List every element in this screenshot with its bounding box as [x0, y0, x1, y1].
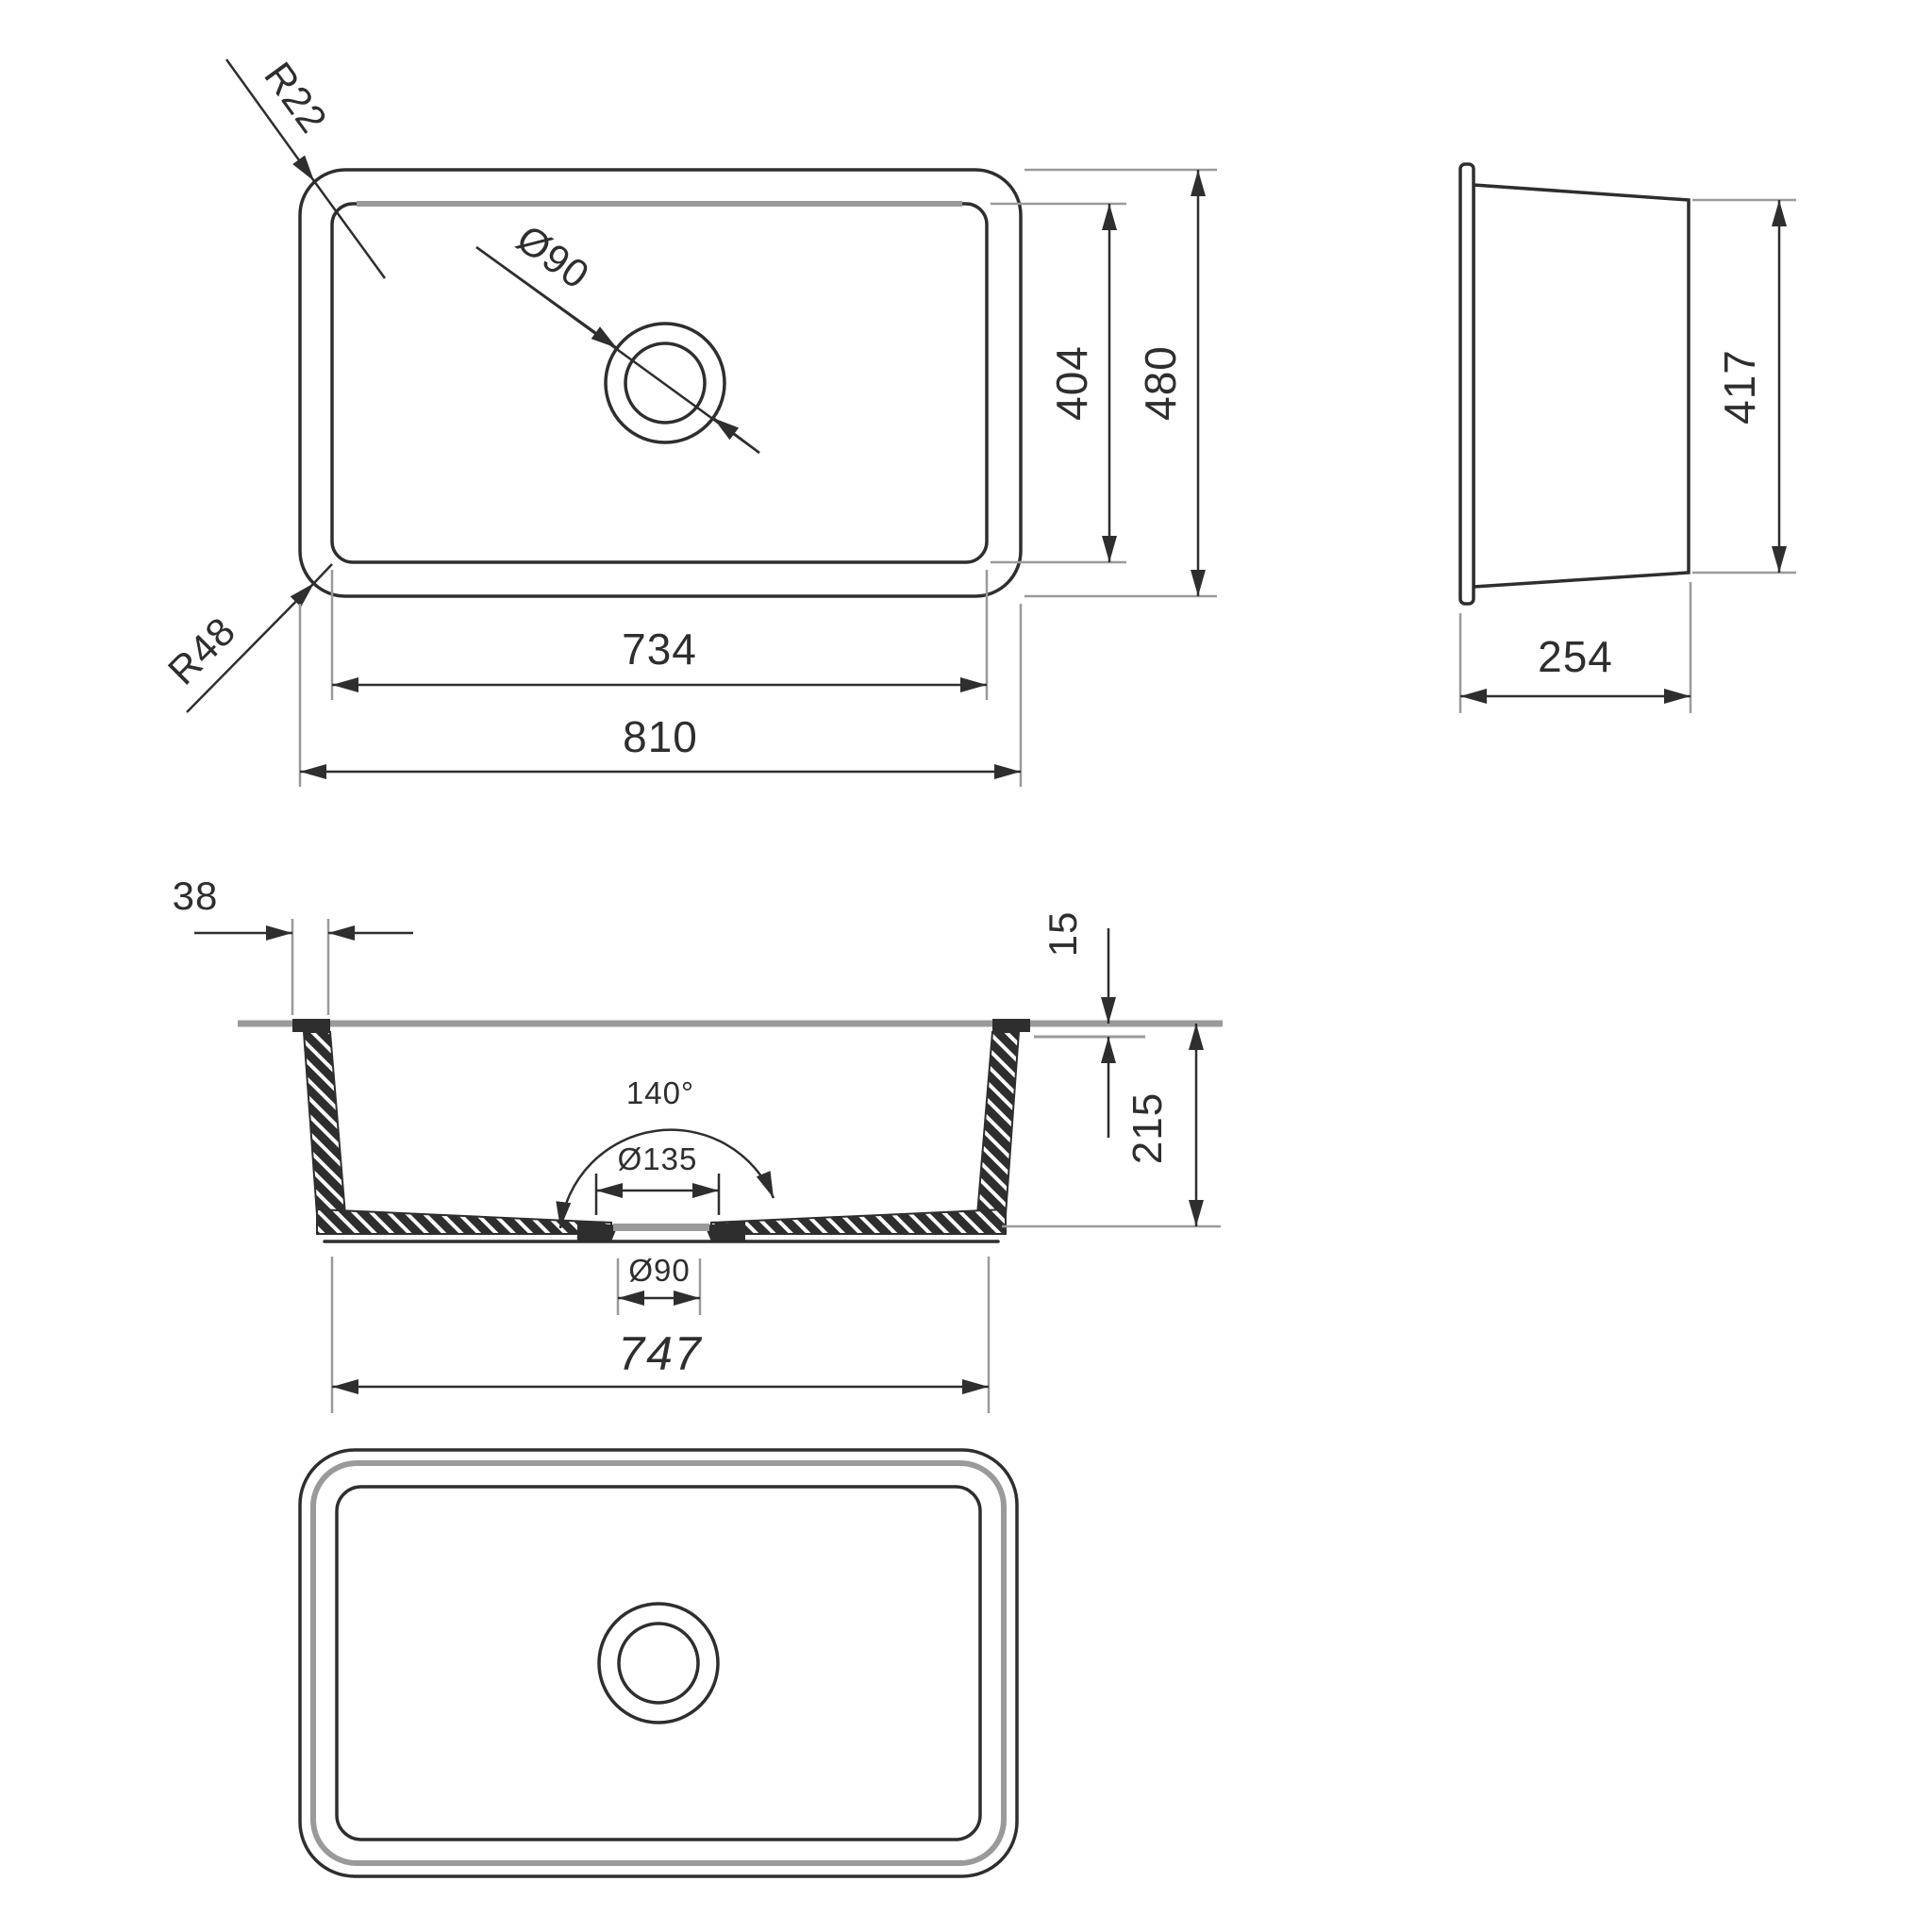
angle-140-label: 140° — [626, 1075, 694, 1110]
dim-404-label: 404 — [1047, 345, 1096, 421]
bottom-inner-outline — [337, 1487, 980, 1840]
dim-254-label: 254 — [1538, 632, 1613, 681]
rim-cap-right — [992, 1019, 1030, 1032]
bottom-outer-outline — [300, 1450, 1017, 1876]
bottom-drain-hole-circle — [619, 1624, 698, 1703]
dim-215-label: 215 — [1124, 1092, 1171, 1164]
sink-outer-outline — [300, 170, 1021, 596]
bottom-view — [300, 1450, 1017, 1876]
r48-label: R48 — [159, 608, 244, 693]
side-rim-flange — [1460, 164, 1474, 604]
drain-leader-arrow-lower — [713, 418, 759, 453]
drain-diameter-label: Ø90 — [508, 216, 597, 297]
dim-417-label: 417 — [1715, 349, 1764, 425]
section-floor-right — [711, 1209, 1006, 1234]
dim-15-label: 15 — [1041, 911, 1085, 958]
section-view: 38 140° Ø135 Ø90 15 215 747 — [173, 874, 1223, 1413]
dim-135-label: Ø135 — [618, 1141, 698, 1176]
dim-90-label: Ø90 — [628, 1253, 690, 1288]
r22-leader-tail — [314, 181, 385, 278]
top-view: Ø90 R22 R48 404 480 734 810 — [159, 54, 1217, 787]
side-view: 417 254 — [1460, 164, 1796, 713]
dim-734-label: 734 — [622, 625, 697, 674]
dim-480-label: 480 — [1136, 345, 1185, 421]
sink-technical-drawing: Ø90 R22 R48 404 480 734 810 — [0, 0, 1932, 1932]
dim-810-label: 810 — [623, 712, 698, 761]
bottom-middle-outline — [313, 1463, 1004, 1863]
dim-747-label: 747 — [618, 1327, 703, 1380]
bottom-drain-recess-circle — [599, 1604, 718, 1723]
r22-label: R22 — [256, 54, 336, 141]
section-wall-left — [304, 1032, 345, 1215]
sink-inner-outline — [332, 204, 987, 562]
r48-leader-tail — [314, 564, 332, 583]
section-floor-left — [317, 1209, 611, 1234]
drawing-page: Ø90 R22 R48 404 480 734 810 — [0, 0, 1932, 1932]
rim-cap-left — [292, 1019, 330, 1032]
side-body-outline — [1474, 185, 1689, 587]
section-wall-right — [977, 1032, 1019, 1215]
dim-38-label: 38 — [173, 874, 219, 918]
